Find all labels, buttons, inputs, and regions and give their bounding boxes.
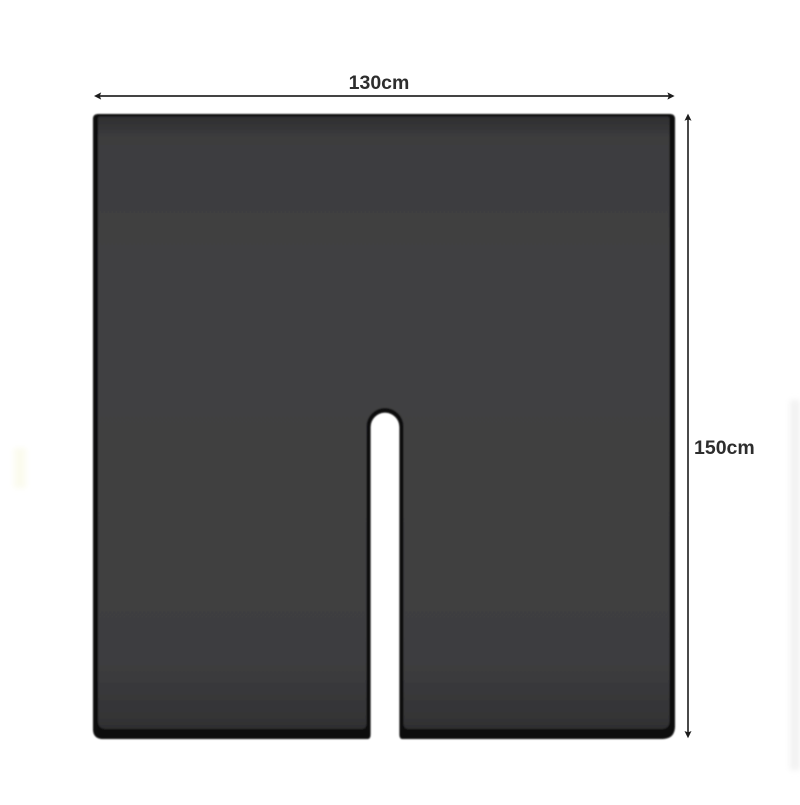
svg-text:130cm: 130cm bbox=[349, 72, 410, 94]
svg-text:150cm: 150cm bbox=[694, 437, 755, 459]
